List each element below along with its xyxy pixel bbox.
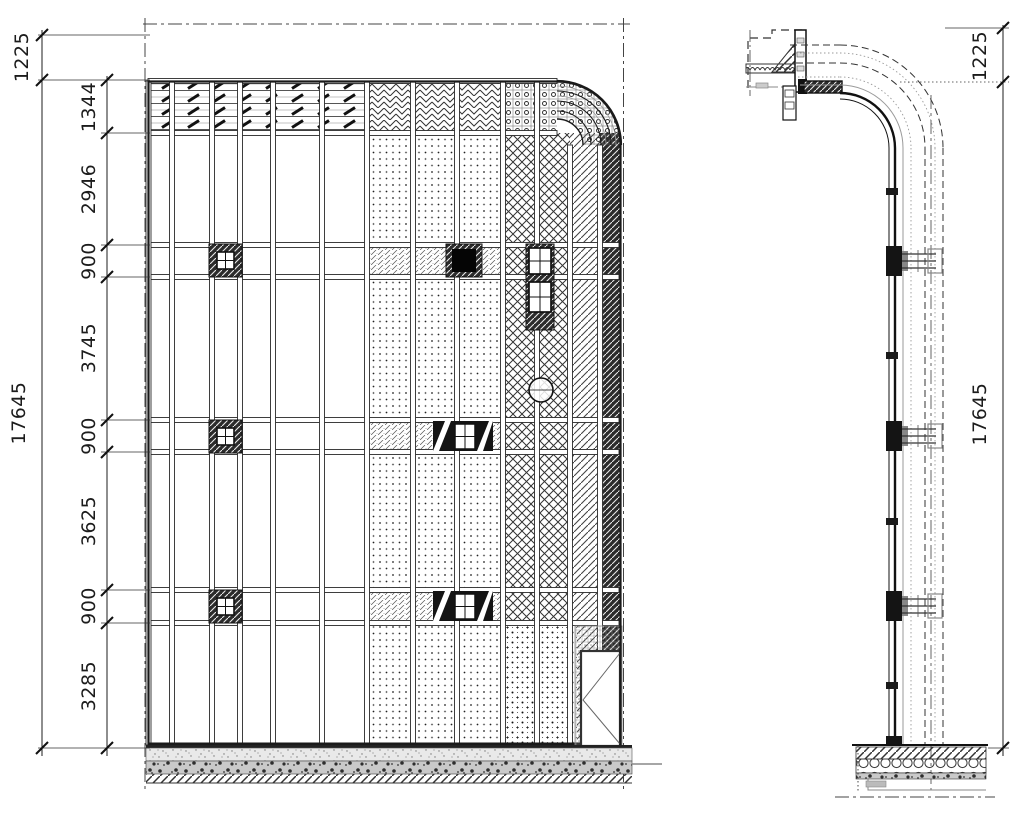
feature-window-square [209, 420, 242, 453]
section-parapet [746, 30, 807, 120]
dim-overall-right: 17645 [969, 383, 991, 446]
feature-window-square [209, 590, 242, 623]
detail-callout-bubble [529, 378, 553, 402]
dim-chain-900a: 900 [78, 242, 100, 280]
section-bracket [886, 421, 942, 451]
dim-chain-2946: 2946 [78, 164, 100, 214]
dim-chain-900c: 900 [78, 587, 100, 625]
entrance-door [575, 626, 622, 747]
elevation-dimensions: 1225 17645 1344 2946 900 3745 900 3625 9… [8, 29, 150, 756]
section-bracket [886, 591, 942, 621]
dim-parapet-right: 1225 [969, 31, 991, 81]
dimension-ticks [36, 29, 113, 754]
curtain-wall-drawing: 1225 17645 1344 2946 900 3745 900 3625 9… [0, 0, 1028, 816]
feature-parallelogram-window [433, 421, 493, 451]
feature-parallelogram-window [433, 591, 493, 621]
elevation-view: 1225 17645 1344 2946 900 3745 900 3625 9… [8, 18, 662, 792]
dim-overall-left: 17645 [8, 382, 30, 445]
section-bracket [886, 246, 942, 276]
feature-stacked-windows [526, 244, 554, 330]
facade-grid [146, 79, 621, 747]
elevation-ground [146, 745, 662, 783]
dim-parapet-left: 1225 [11, 32, 33, 82]
section-dimensions: 1225 17645 [900, 22, 1009, 756]
dim-chain-900b: 900 [78, 417, 100, 455]
section-curve [790, 45, 943, 148]
section-floor-slab [835, 736, 995, 797]
dim-chain-3285: 3285 [78, 661, 100, 711]
drawing-canvas: 1225 17645 1344 2946 900 3745 900 3625 9… [0, 0, 1028, 816]
dim-chain-3625: 3625 [78, 496, 100, 546]
feature-window-square [209, 244, 242, 277]
section-view: 1225 17645 [746, 22, 1009, 797]
feature-solid-panel [446, 244, 482, 277]
dim-chain-3745: 3745 [78, 323, 100, 373]
dim-chain-1344: 1344 [78, 82, 100, 132]
